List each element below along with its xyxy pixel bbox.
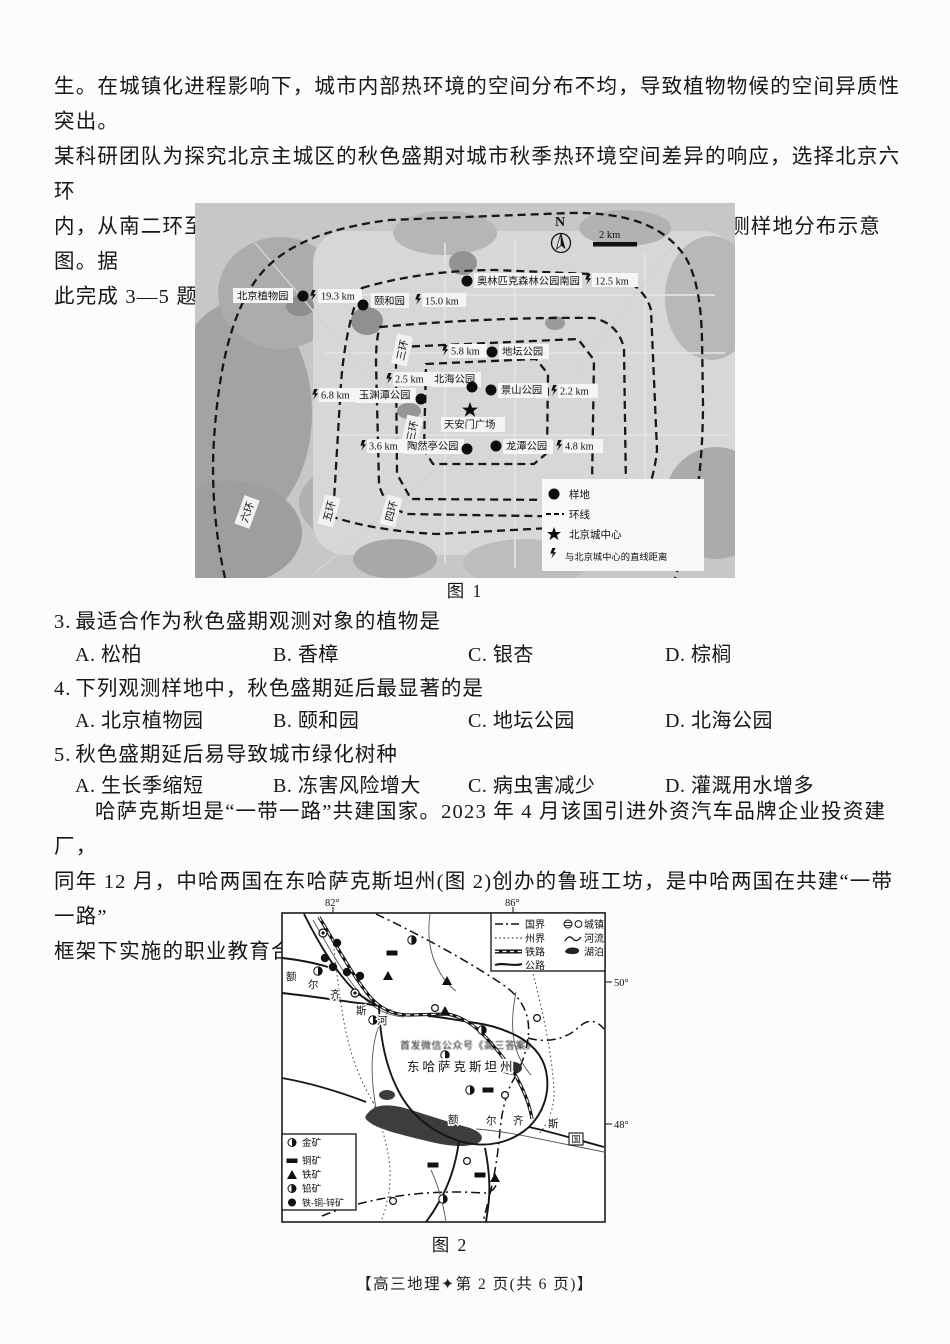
option-5-a: A. 生长季缩短 xyxy=(75,769,203,798)
question-number: 5. xyxy=(54,744,71,766)
sample-dot xyxy=(487,347,498,358)
svg-text:环线: 环线 xyxy=(569,508,590,521)
svg-text:铁-铜-锌矿: 铁-铜-锌矿 xyxy=(302,1197,344,1208)
svg-text:82°: 82° xyxy=(325,898,340,909)
option-3-c: C. 银杏 xyxy=(468,638,534,667)
border-town-box: 国 xyxy=(569,1133,583,1145)
river-char: 额 xyxy=(286,970,297,983)
svg-text:颐和园: 颐和园 xyxy=(374,296,405,308)
svg-text:2 km: 2 km xyxy=(599,230,620,241)
question-5: 5.秋色盛期延后易导致城市绿化树种 xyxy=(54,737,398,767)
svg-text:3.6 km: 3.6 km xyxy=(369,442,398,453)
svg-text:2.2 km: 2.2 km xyxy=(560,387,589,398)
exam-page: 生。在城镇化进程影响下，城市内部热环境的空间分布不均，导致植物物候的空间异质性突… xyxy=(0,0,950,1344)
figure-2-caption: 图 2 xyxy=(280,1232,620,1257)
legend-road-icon xyxy=(495,964,522,965)
svg-text:金矿: 金矿 xyxy=(302,1137,322,1149)
question-stem: 秋色盛期延后易导致城市绿化树种 xyxy=(75,744,398,766)
svg-text:国界: 国界 xyxy=(525,919,545,931)
river-char: 额 xyxy=(448,1113,459,1126)
svg-text:5.8 km: 5.8 km xyxy=(451,347,480,358)
question-4: 4.下列观测样地中，秋色盛期延后最显著的是 xyxy=(54,671,484,701)
mineral-legend: 金矿 铜矿 铁矿 铅矿 铁-铜-锌矿 xyxy=(282,1134,356,1210)
map1-legend: 样地 环线 北京城中心 与北京城中心的直线距离 xyxy=(542,479,704,571)
svg-text:国: 国 xyxy=(572,1135,581,1145)
svg-text:6.8 km: 6.8 km xyxy=(321,391,350,402)
question-4-options: A. 北京植物园 B. 颐和园 C. 地坛公园 D. 北海公园 xyxy=(0,704,950,732)
legend-sample-dot xyxy=(549,489,560,500)
option-5-b: B. 冻害风险增大 xyxy=(273,769,421,798)
svg-text:铁路: 铁路 xyxy=(525,946,545,959)
map2-legend: 国界 城镇 州界 河流 铁路 湖泊 公路 xyxy=(491,913,605,972)
legend-lead-icon xyxy=(288,1185,296,1193)
river-char: 斯 xyxy=(356,1004,367,1017)
watermark: 首发微信公众号《高三答案》 xyxy=(400,1039,537,1052)
sample-dot xyxy=(462,444,473,455)
option-3-d: D. 棕榈 xyxy=(665,638,732,667)
site-longtan-park: 龙潭公园 4.8 km xyxy=(491,439,604,454)
svg-text:公路: 公路 xyxy=(525,959,545,972)
river-char: 尔 xyxy=(486,1114,497,1127)
river-char: 尔 xyxy=(308,978,319,991)
svg-text:50°: 50° xyxy=(614,978,629,989)
option-4-c: C. 地坛公园 xyxy=(468,704,575,733)
beijing-map: 六环 五环 四环 三环 三环 北京植物园 19.3 km 颐和园 15.0 km xyxy=(195,203,735,583)
svg-text:陶然亭公园: 陶然亭公园 xyxy=(407,440,458,453)
svg-text:12.5 km: 12.5 km xyxy=(595,277,629,288)
question-stem: 下列观测样地中，秋色盛期延后最显著的是 xyxy=(75,678,484,700)
river-char: 斯 xyxy=(548,1117,559,1130)
svg-text:北京城中心: 北京城中心 xyxy=(569,528,622,541)
svg-text:龙潭公园: 龙潭公园 xyxy=(506,440,547,453)
svg-text:奥林匹克森林公园南园: 奥林匹克森林公园南园 xyxy=(477,275,580,288)
question-stem: 最适合作为秋色盛期观测对象的植物是 xyxy=(75,611,441,633)
sample-dot xyxy=(298,291,309,302)
svg-text:铜矿: 铜矿 xyxy=(302,1155,322,1167)
question-number: 4. xyxy=(54,678,71,700)
option-3-b: B. 香樟 xyxy=(273,638,339,667)
option-4-b: B. 颐和园 xyxy=(273,704,359,733)
sample-dot xyxy=(416,394,427,405)
svg-text:48°: 48° xyxy=(614,1120,629,1131)
beijing-map-svg: 六环 五环 四环 三环 三环 北京植物园 19.3 km 颐和园 15.0 km xyxy=(195,203,735,578)
sample-dot xyxy=(486,385,497,396)
svg-text:与北京城中心的直线距离: 与北京城中心的直线距离 xyxy=(565,551,667,563)
svg-text:15.0 km: 15.0 km xyxy=(425,297,459,308)
svg-text:玉渊潭公园: 玉渊潭公园 xyxy=(359,390,410,402)
sample-dot xyxy=(467,382,478,393)
legend-fe-cu-zn-icon xyxy=(288,1199,296,1207)
svg-text:4.8 km: 4.8 km xyxy=(565,442,594,453)
legend-gold-icon xyxy=(288,1139,296,1147)
site-olympic-forest-park: 奥林匹克森林公园南园 12.5 km xyxy=(462,273,639,288)
kazakhstan-map-svg: 82° 86° 50° 48° xyxy=(280,896,642,1232)
kazakhstan-map: 82° 86° 50° 48° xyxy=(280,896,642,1237)
site-jingshan-park: 景山公园 2.2 km xyxy=(486,383,599,398)
svg-text:景山公园: 景山公园 xyxy=(501,385,542,397)
svg-text:铅矿: 铅矿 xyxy=(302,1183,322,1195)
sample-dot xyxy=(358,300,369,311)
river-char: 齐 xyxy=(330,988,341,1001)
question-5-options: A. 生长季缩短 B. 冻害风险增大 C. 病虫害减少 D. 灌溉用水增多 xyxy=(0,769,950,797)
svg-text:州界: 州界 xyxy=(525,933,545,945)
site-taoranting-park: 3.6 km 陶然亭公园 xyxy=(360,439,472,455)
svg-text:地坛公园: 地坛公园 xyxy=(502,345,543,358)
sample-dot xyxy=(491,441,502,452)
question-3: 3.最适合作为秋色盛期观测对象的植物是 xyxy=(54,604,441,634)
svg-text:19.3 km: 19.3 km xyxy=(321,292,355,303)
page-footer: 【高三地理✦第 2 页(共 6 页)】 xyxy=(0,1272,950,1294)
svg-text:天安门广场: 天安门广场 xyxy=(444,418,495,431)
svg-text:2.5 km: 2.5 km xyxy=(395,375,424,386)
svg-text:城镇: 城镇 xyxy=(584,918,604,931)
option-5-d: D. 灌溉用水增多 xyxy=(665,769,814,798)
svg-text:样地: 样地 xyxy=(569,488,590,501)
river-char: 河 xyxy=(377,1015,388,1027)
river-char: 齐 xyxy=(513,1114,524,1127)
option-5-c: C. 病虫害减少 xyxy=(468,769,595,798)
option-4-a: A. 北京植物园 xyxy=(75,704,203,733)
svg-text:湖泊: 湖泊 xyxy=(584,947,604,959)
svg-text:86°: 86° xyxy=(505,898,520,909)
svg-text:铁矿: 铁矿 xyxy=(302,1169,322,1181)
figure-1-caption: 图 1 xyxy=(195,578,735,603)
option-3-a: A. 松柏 xyxy=(75,638,142,667)
state-name-label: 东哈萨克斯坦州 xyxy=(407,1060,516,1074)
question-number: 3. xyxy=(54,611,71,633)
svg-text:北京植物园: 北京植物园 xyxy=(237,290,288,303)
sample-dot xyxy=(462,276,473,287)
legend-copper-icon xyxy=(287,1159,298,1164)
svg-text:河流: 河流 xyxy=(584,932,604,945)
option-4-d: D. 北海公园 xyxy=(665,704,773,733)
question-3-options: A. 松柏 B. 香樟 C. 银杏 D. 棕榈 xyxy=(0,638,950,666)
svg-text:N: N xyxy=(555,215,565,230)
